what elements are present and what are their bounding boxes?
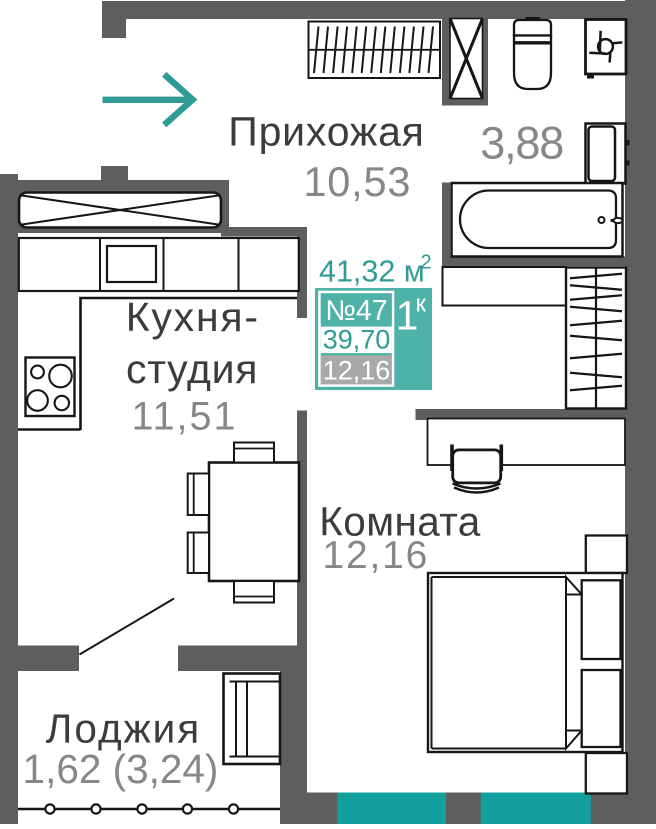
svg-text:студия: студия: [126, 346, 258, 392]
svg-text:2: 2: [421, 252, 432, 274]
svg-text:12,16: 12,16: [322, 534, 429, 577]
svg-text:11,51: 11,51: [132, 395, 238, 439]
svg-text:41,32 м: 41,32 м: [319, 255, 425, 289]
svg-text:1,62 (3,24): 1,62 (3,24): [23, 746, 219, 792]
svg-text:№47: №47: [325, 295, 387, 327]
svg-text:Прихожая: Прихожая: [228, 109, 424, 155]
svg-text:10,53: 10,53: [303, 158, 411, 205]
svg-text:Лоджия: Лоджия: [46, 706, 202, 752]
svg-text:3,88: 3,88: [480, 118, 563, 169]
svg-text:39,70: 39,70: [323, 325, 391, 355]
svg-text:к: к: [416, 291, 427, 318]
svg-text:12,16: 12,16: [323, 356, 391, 386]
svg-text:Кухня-: Кухня-: [126, 294, 260, 340]
